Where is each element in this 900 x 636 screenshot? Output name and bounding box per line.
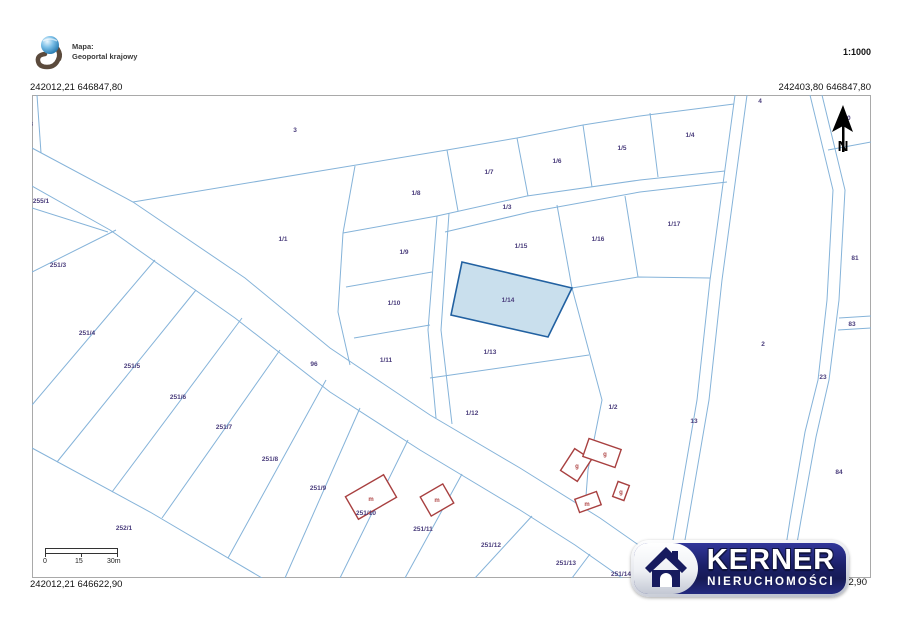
parcel-label-84: 84 <box>835 469 843 476</box>
parcel-label-251-11: 251/11 <box>413 526 433 533</box>
parcel-label-1-9: 1/9 <box>399 249 408 256</box>
parcel-label-4: 4 <box>758 98 762 105</box>
parcel-label-251-10: 251/10 <box>356 510 376 517</box>
parcel-label-13: 13 <box>690 418 698 425</box>
parcel-label-251-9: 251/9 <box>310 485 327 492</box>
parcel-label-1-13: 1/13 <box>484 349 497 356</box>
kerner-badge: KERNER NIERUCHOMOŚCI <box>634 543 846 594</box>
coordinate-bottom-left: 242012,21 646622,90 <box>30 579 122 590</box>
kerner-logo-cap <box>634 543 698 594</box>
parcel-label-1-10: 1/10 <box>388 300 401 307</box>
kerner-brand-name: KERNER <box>700 545 842 575</box>
scale-bar-start: 0 <box>43 558 47 565</box>
building-label-m: m <box>584 502 589 508</box>
scale-bar-labels: 0 15 30m <box>45 558 135 567</box>
building-label-g: g <box>619 490 623 496</box>
north-arrow-letter: N <box>838 138 849 155</box>
coordinate-top-right: 242403,80 646847,80 <box>779 82 871 93</box>
parcel-label-1-4: 1/4 <box>685 132 694 139</box>
parcel-label-251-12: 251/12 <box>481 542 501 549</box>
parcel-label-1-17: 1/17 <box>668 221 681 228</box>
parcel-label-251-13: 251/13 <box>556 560 576 567</box>
parcel-label-251-4: 251/4 <box>79 330 96 337</box>
parcel-label-1-6: 1/6 <box>552 158 561 165</box>
house-icon <box>643 546 689 590</box>
parcel-label-1-16: 1/16 <box>592 236 605 243</box>
parcel-boundaries <box>32 95 871 578</box>
kerner-subtitle: NIERUCHOMOŚCI <box>700 576 842 589</box>
parcel-label-1-8: 1/8 <box>411 190 420 197</box>
scale-bar: 0 15 30m <box>45 548 135 567</box>
kerner-text-block: KERNER NIERUCHOMOŚCI <box>700 545 842 589</box>
parcel-label-3: 3 <box>293 127 297 134</box>
parcel-label-1-11: 1/11 <box>380 357 393 364</box>
parcel-label-81: 81 <box>851 255 859 262</box>
parcel-label-1-12: 1/12 <box>466 410 479 417</box>
scale-bar-end: 30m <box>107 558 121 565</box>
parcel-label-1-15: 1/15 <box>515 243 528 250</box>
parcel-label-251-7: 251/7 <box>216 424 233 431</box>
parcel-label-251-3: 251/3 <box>50 262 67 269</box>
parcel-label-251-5: 251/5 <box>124 363 141 370</box>
parcel-label-1-5: 1/5 <box>617 145 626 152</box>
parcel-label-251-14: 251/14 <box>611 571 631 578</box>
parcel-label-83: 83 <box>848 321 856 328</box>
building-label-m: m <box>368 497 373 503</box>
building-label-g: g <box>603 452 607 458</box>
parcel-label-23: 23 <box>819 374 827 381</box>
building-label-g: g <box>575 464 579 470</box>
parcel-label-1-2: 1/2 <box>608 404 617 411</box>
coordinate-top-left: 242012,21 646847,80 <box>30 82 122 93</box>
parcel-label-251-6: 251/6 <box>170 394 187 401</box>
building-label-m: m <box>434 498 439 504</box>
parcel-label-96: 96 <box>310 361 318 368</box>
parcel-label-1-1: 1/1 <box>278 236 287 243</box>
parcel-label-1-14: 1/14 <box>502 297 515 304</box>
geoportal-map-page: Mapa: Geoportal krajowy 1:1000 242012,21… <box>0 0 900 636</box>
parcel-label-1-7: 1/7 <box>484 169 493 176</box>
parcel-label-8: 8 <box>29 121 33 128</box>
kerner-watermark: KERNER NIERUCHOMOŚCI <box>631 540 849 597</box>
parcel-label-2: 2 <box>761 341 765 348</box>
parcel-label-255-1: 255/1 <box>33 198 50 205</box>
parcel-label-251-8: 251/8 <box>262 456 279 463</box>
scale-bar-middle: 15 <box>75 558 83 565</box>
parcel-label-252-1: 252/1 <box>116 525 133 532</box>
parcel-label-1-3: 1/3 <box>502 204 511 211</box>
